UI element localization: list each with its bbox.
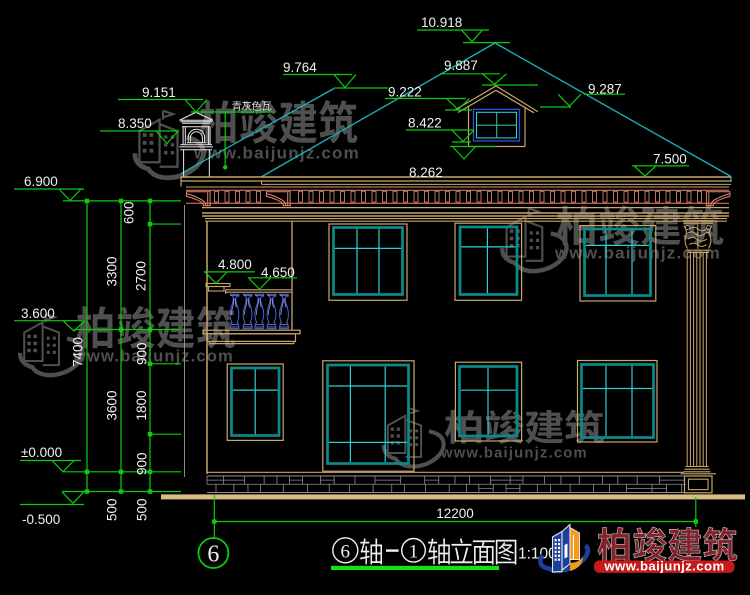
svg-text:8.262: 8.262	[409, 165, 443, 180]
svg-text:10.918: 10.918	[421, 15, 462, 30]
svg-text:500: 500	[135, 498, 150, 521]
svg-text:www.baijunjz.com: www.baijunjz.com	[554, 244, 721, 263]
svg-text:-0.500: -0.500	[22, 512, 60, 527]
svg-text:12200: 12200	[436, 506, 474, 521]
svg-text:9.764: 9.764	[283, 60, 317, 75]
svg-text:500: 500	[105, 498, 120, 521]
svg-text:7400: 7400	[71, 337, 86, 367]
svg-text:±0.000: ±0.000	[21, 445, 62, 460]
svg-text:2700: 2700	[134, 261, 149, 291]
svg-text:4.800: 4.800	[218, 257, 252, 272]
svg-text:www.baijunjz.com: www.baijunjz.com	[72, 347, 234, 366]
svg-text:www.baijunjz.com: www.baijunjz.com	[603, 559, 724, 574]
svg-text:600: 600	[122, 201, 137, 224]
svg-text:1: 1	[409, 541, 419, 562]
svg-text:8.350: 8.350	[118, 116, 152, 131]
svg-text:7.500: 7.500	[653, 152, 687, 167]
svg-text:3300: 3300	[105, 256, 120, 286]
svg-text:8.422: 8.422	[408, 116, 442, 131]
svg-text:6: 6	[341, 541, 351, 562]
svg-text:3600: 3600	[105, 390, 120, 420]
svg-text:1:100: 1:100	[518, 546, 557, 563]
svg-text:9.887: 9.887	[444, 58, 478, 73]
svg-text:1800: 1800	[134, 390, 149, 420]
svg-text:900: 900	[135, 452, 150, 475]
svg-text:9.222: 9.222	[388, 85, 422, 100]
svg-text:6.900: 6.900	[24, 174, 58, 189]
svg-text:3.600: 3.600	[21, 306, 55, 321]
svg-text:9.151: 9.151	[142, 85, 176, 100]
svg-text:900: 900	[135, 342, 150, 365]
svg-text:6: 6	[207, 542, 219, 568]
svg-text:www.baijunjz.com: www.baijunjz.com	[440, 446, 588, 462]
